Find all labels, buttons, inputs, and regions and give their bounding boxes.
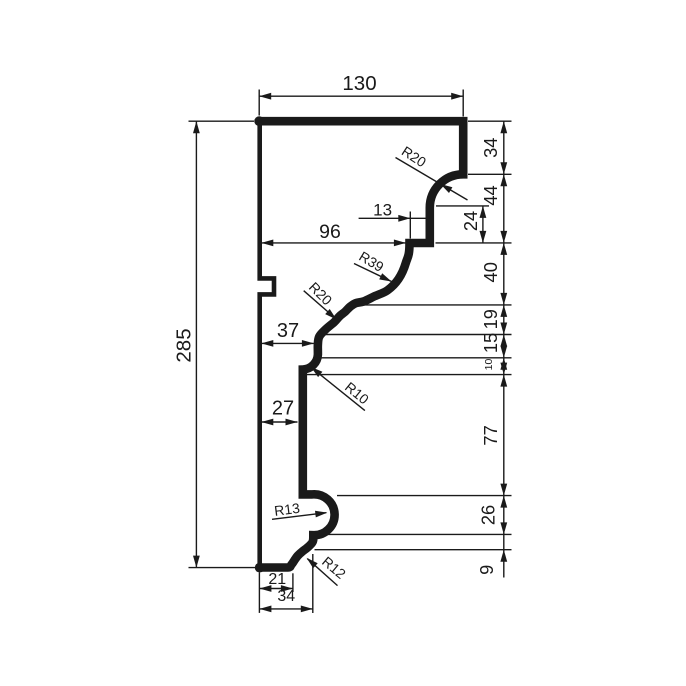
svg-text:96: 96 bbox=[319, 221, 341, 243]
svg-text:R13: R13 bbox=[273, 500, 301, 519]
svg-text:44: 44 bbox=[480, 185, 501, 205]
svg-text:R10: R10 bbox=[342, 379, 372, 408]
svg-text:34: 34 bbox=[480, 138, 501, 158]
svg-text:34: 34 bbox=[277, 588, 295, 605]
svg-text:40: 40 bbox=[480, 262, 501, 282]
svg-text:R20: R20 bbox=[306, 279, 336, 309]
svg-text:19: 19 bbox=[480, 309, 501, 329]
svg-text:9: 9 bbox=[476, 565, 497, 575]
svg-text:37: 37 bbox=[277, 320, 299, 342]
svg-text:24: 24 bbox=[460, 211, 481, 231]
svg-text:21: 21 bbox=[268, 571, 286, 588]
svg-text:10: 10 bbox=[483, 359, 495, 371]
svg-text:26: 26 bbox=[477, 505, 498, 525]
svg-text:R20: R20 bbox=[399, 143, 429, 171]
svg-text:27: 27 bbox=[272, 397, 294, 419]
svg-text:15: 15 bbox=[480, 333, 501, 353]
svg-text:285: 285 bbox=[173, 328, 196, 362]
svg-text:13: 13 bbox=[373, 201, 392, 220]
svg-text:77: 77 bbox=[480, 425, 501, 445]
svg-text:130: 130 bbox=[342, 72, 376, 95]
svg-text:R12: R12 bbox=[319, 553, 349, 582]
svg-text:R39: R39 bbox=[356, 248, 386, 275]
